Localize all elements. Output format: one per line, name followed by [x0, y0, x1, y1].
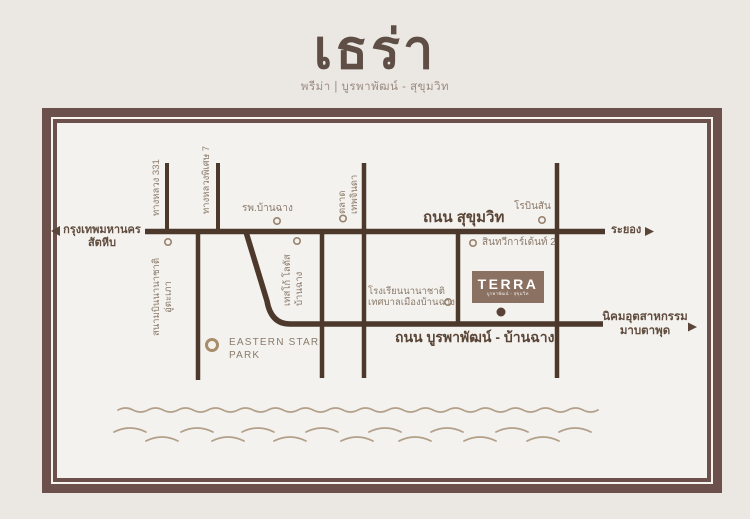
airport-line1: สนามบินนานาชาติ	[151, 258, 163, 336]
maptaphut-line2: มาบตาพุด	[602, 324, 688, 338]
project-name: TERRA	[478, 277, 539, 291]
label-destination-rayong: ระยอง	[611, 225, 641, 236]
label-road-highway-331: ทางหลวง 331	[151, 159, 163, 216]
location-map-poster: เธร่า พรีม่า | บูรพาพัฒน์ - สุขุมวิท	[0, 0, 750, 519]
sea-waves	[114, 408, 598, 441]
label-road-burapha: ถนน บูรพาพัฒน์ - บ้านฉาง	[395, 327, 554, 349]
project-tagline: บูรพาพัฒน์ - สุขุมวิท	[487, 292, 529, 296]
bangkok-line1: กรุงเทพมหานคร	[62, 224, 142, 237]
market-line2: เทพจินดา	[349, 175, 361, 214]
poi-hospital-icon	[274, 218, 280, 224]
label-sinthavee-garden: สินทวีการ์เด้นท์ 2	[482, 237, 556, 248]
park-line1: EASTERN STAR	[229, 337, 319, 350]
bangkok-line2: สัตหีบ	[62, 237, 142, 250]
tesco-line2: บ้านฉาง	[294, 254, 306, 306]
label-road-motorway-7: ทางหลวงพิเศษ 7	[201, 146, 213, 214]
wave-line-long	[118, 408, 598, 412]
poi-airport-icon	[165, 239, 171, 245]
maptaphut-line1: นิคมอุตสาหกรรม	[602, 310, 688, 324]
arrow-maptaphut-icon	[688, 323, 697, 332]
arrow-west-icon	[51, 226, 60, 236]
label-market-thepchinda: ตลาด เทพจินดา	[337, 175, 361, 214]
poi-tesco-icon	[294, 238, 300, 244]
direction-arrows	[51, 226, 697, 332]
project-location-dot	[497, 308, 506, 317]
project-logo-box: TERRA บูรพาพัฒน์ - สุขุมวิท	[472, 271, 544, 303]
poi-eastern-star-park-icon	[207, 340, 218, 351]
poi-market-icon	[340, 215, 346, 221]
wave-arcs-lower	[146, 437, 559, 441]
tesco-line1: เทสโก้ โลตัส	[282, 254, 294, 306]
label-tesco-lotus: เทสโก้ โลตัส บ้านฉาง	[282, 254, 306, 306]
label-utapao-airport: สนามบินนานาชาติ อู่ตะเภา	[151, 258, 175, 336]
school-line1: โรงเรียนนานาชาติ	[368, 286, 455, 297]
poi-sinthavee-icon	[470, 240, 476, 246]
wave-arcs-upper	[114, 428, 591, 432]
airport-line2: อู่ตะเภา	[163, 258, 175, 336]
label-eastern-star-park: EASTERN STAR PARK	[229, 337, 319, 362]
label-international-school: โรงเรียนนานาชาติ เทศบาลเมืองบ้านฉาง	[368, 286, 455, 308]
park-line2: PARK	[229, 350, 319, 363]
map-graphics	[0, 0, 750, 519]
school-line2: เทศบาลเมืองบ้านฉาง	[368, 297, 455, 308]
label-robinson: โรบินสัน	[514, 201, 551, 212]
market-line1: ตลาด	[337, 175, 349, 214]
arrow-east-icon	[645, 227, 654, 236]
label-destination-maptaphut: นิคมอุตสาหกรรม มาบตาพุด	[602, 310, 688, 338]
poi-robinson-icon	[539, 217, 545, 223]
label-hospital: รพ.บ้านฉาง	[242, 203, 293, 214]
label-destination-bangkok: กรุงเทพมหานคร สัตหีบ	[62, 224, 142, 250]
label-road-sukhumvit: ถนน สุขุมวิท	[423, 205, 504, 229]
